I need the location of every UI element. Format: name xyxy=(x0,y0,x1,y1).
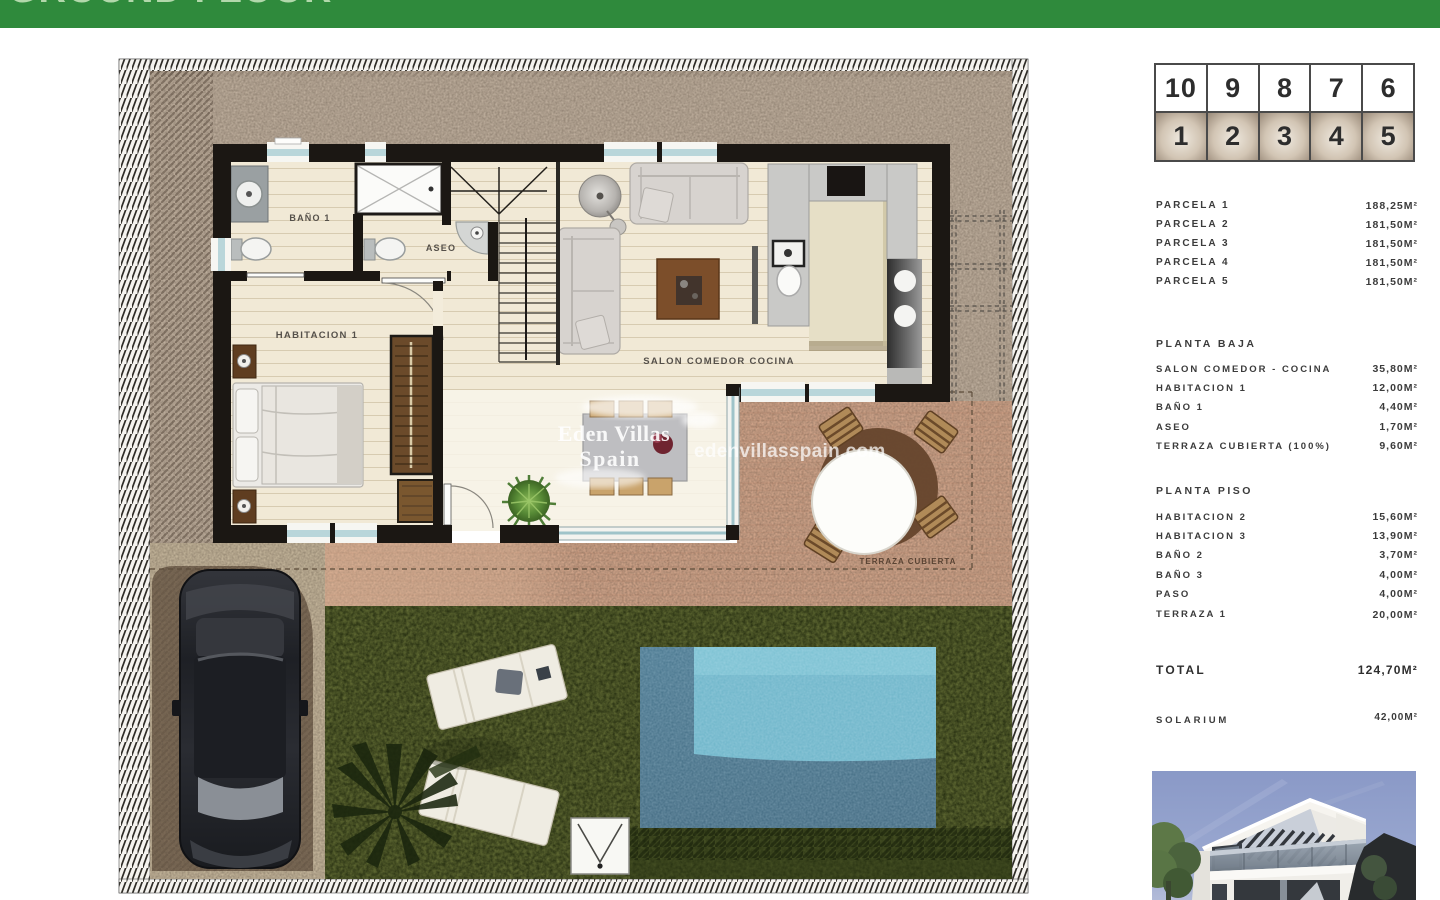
svg-text:Spain: Spain xyxy=(579,446,640,471)
svg-text:edenvillasspain.com: edenvillasspain.com xyxy=(694,441,886,462)
svg-text:HABITACION 1: HABITACION 1 xyxy=(276,330,358,341)
svg-text:SALON COMEDOR COCINA: SALON COMEDOR COCINA xyxy=(643,356,795,367)
svg-text:TERRAZA CUBIERTA: TERRAZA CUBIERTA xyxy=(860,557,957,566)
svg-text:BAÑO 1: BAÑO 1 xyxy=(289,213,330,223)
svg-text:ASEO: ASEO xyxy=(426,243,456,253)
svg-text:Eden Villas: Eden Villas xyxy=(558,421,670,446)
